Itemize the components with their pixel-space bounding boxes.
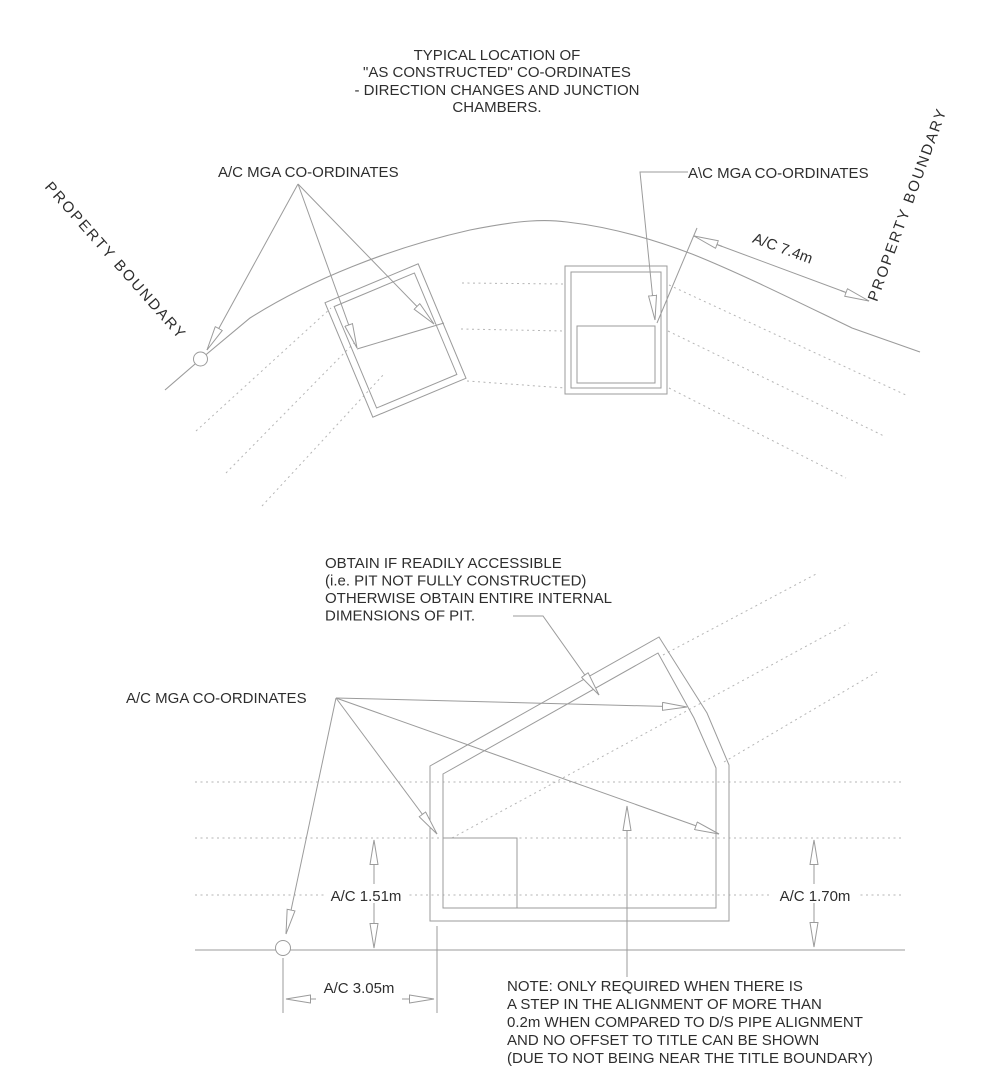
dimension-text-offset: A/C 7.4m xyxy=(750,230,815,268)
label-mga-coordinates-left: A/C MGA CO-ORDINATES xyxy=(218,164,399,181)
obtain-note-line: (i.e. PIT NOT FULLY CONSTRUCTED) xyxy=(325,573,586,590)
pipe-dashed-line xyxy=(196,308,331,431)
pipe-dashed-line xyxy=(452,623,849,838)
pit-internal-step xyxy=(443,838,517,908)
pipe-dashed-line xyxy=(462,283,565,284)
dimension-arrow xyxy=(694,236,722,246)
leader-line xyxy=(336,698,719,834)
bottom-diagram: OBTAIN IF READILY ACCESSIBLE (i.e. PIT N… xyxy=(126,555,905,1067)
as-constructed-detail-drawing: TYPICAL LOCATION OF "AS CONSTRUCTED" CO-… xyxy=(0,0,1000,1090)
drawing-sheet: TYPICAL LOCATION OF "AS CONSTRUCTED" CO-… xyxy=(0,0,1000,1090)
note-line: 0.2m WHEN COMPARED TO D/S PIPE ALIGNMENT xyxy=(507,1014,863,1031)
dimension-text-height-left: A/C 1.51m xyxy=(331,888,402,905)
leader-line xyxy=(336,698,437,834)
obtain-note-line: DIMENSIONS OF PIT. xyxy=(325,608,475,625)
top-diagram: A/C MGA CO-ORDINATES A\C MGA CO-ORDINATE… xyxy=(41,105,951,506)
leader-line xyxy=(298,184,357,348)
chamber-outer-wall xyxy=(325,264,466,417)
pipe-dashed-line xyxy=(226,341,356,473)
obtain-note-line: OBTAIN IF READILY ACCESSIBLE xyxy=(325,555,562,572)
leader-line xyxy=(207,184,298,350)
label-mga-coordinates-right: A\C MGA CO-ORDINATES xyxy=(688,165,869,182)
note-line: AND NO OFFSET TO TITLE CAN BE SHOWN xyxy=(507,1032,819,1049)
title-line: CHAMBERS. xyxy=(452,99,541,116)
pipe-dashed-line xyxy=(669,388,846,478)
note-line: (DUE TO NOT BEING NEAR THE TITLE BOUNDAR… xyxy=(507,1050,873,1067)
pit-inner-wall xyxy=(443,653,716,908)
dimension-witness-line xyxy=(657,228,697,323)
leader-line xyxy=(513,616,599,695)
leader-line xyxy=(298,184,434,324)
note-line: A STEP IN THE ALIGNMENT OF MORE THAN xyxy=(507,996,822,1013)
leader-line xyxy=(336,698,687,707)
pit-outer-wall xyxy=(430,637,729,921)
dimension-text-height-right: A/C 1.70m xyxy=(780,888,851,905)
survey-point-marker xyxy=(276,941,291,956)
pipe-dashed-line xyxy=(467,381,565,388)
title-line: TYPICAL LOCATION OF xyxy=(414,47,581,64)
chamber-inner-wall xyxy=(571,272,661,388)
note-line: NOTE: ONLY REQUIRED WHEN THERE IS xyxy=(507,978,803,995)
pipe-dashed-line xyxy=(668,331,884,436)
title-block: TYPICAL LOCATION OF "AS CONSTRUCTED" CO-… xyxy=(354,47,639,116)
dimension-text-width: A/C 3.05m xyxy=(324,980,395,997)
title-line: - DIRECTION CHANGES AND JUNCTION xyxy=(354,82,639,99)
title-line: "AS CONSTRUCTED" CO-ORDINATES xyxy=(363,64,631,81)
property-boundary-label-left: PROPERTY BOUNDARY xyxy=(41,179,189,344)
property-boundary-label-right: PROPERTY BOUNDARY xyxy=(865,105,951,303)
pipe-dashed-line xyxy=(262,374,384,506)
chamber-internal-box xyxy=(577,326,655,383)
pipe-dashed-line xyxy=(461,329,565,331)
chamber-inner-wall xyxy=(334,273,457,408)
pipe-dashed-line xyxy=(669,285,908,396)
chamber-internal-wall xyxy=(357,323,444,349)
leader-line xyxy=(640,172,688,320)
junction-chamber-left xyxy=(325,264,466,417)
pipe-dashed-line xyxy=(663,573,818,655)
pipe-dashed-line xyxy=(724,672,877,762)
label-mga-coordinates: A/C MGA CO-ORDINATES xyxy=(126,690,307,707)
property-boundary-line xyxy=(165,221,920,390)
obtain-note-line: OTHERWISE OBTAIN ENTIRE INTERNAL xyxy=(325,590,612,607)
boundary-corner-marker xyxy=(194,352,208,366)
